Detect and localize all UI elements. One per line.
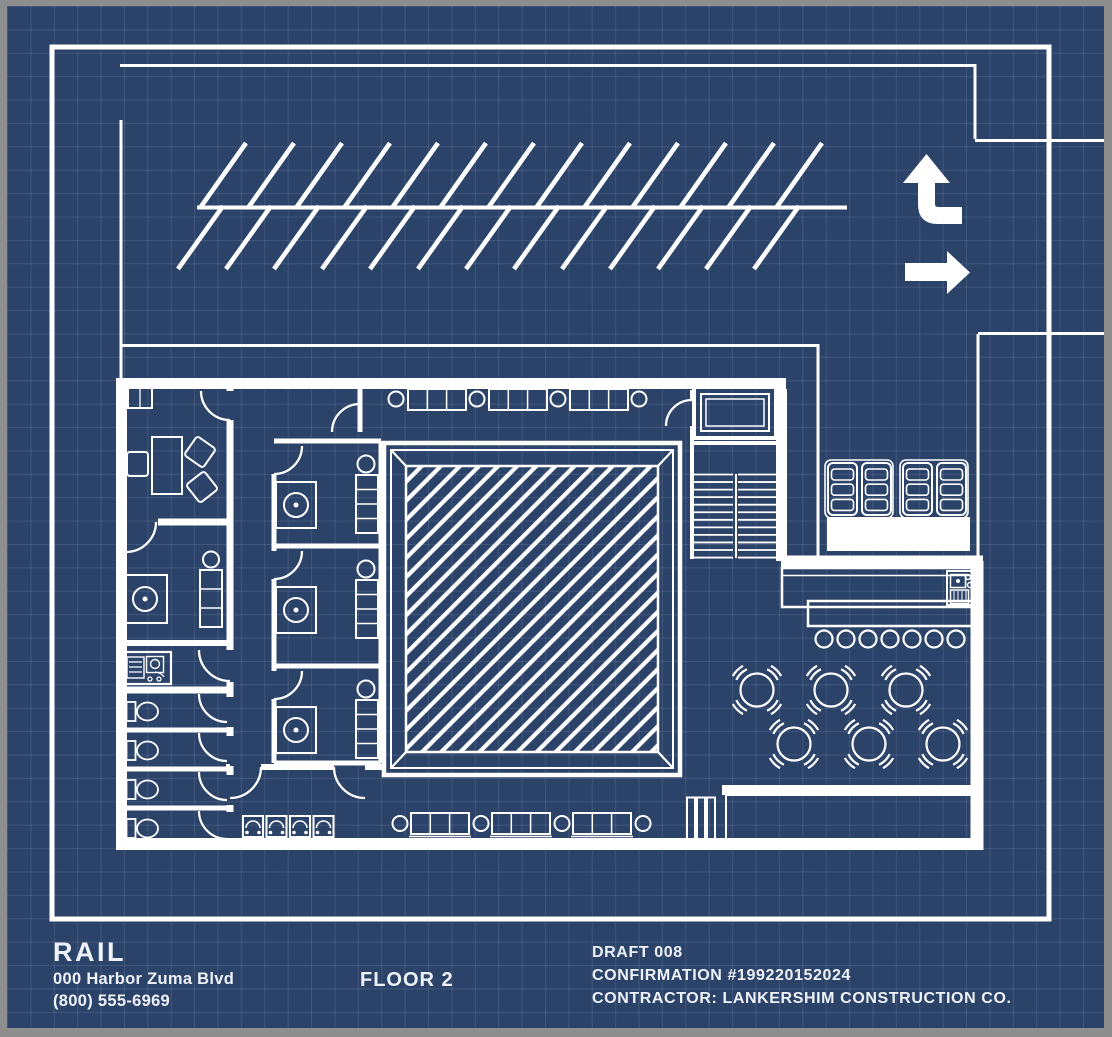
dining-chair: [845, 666, 855, 676]
stall-door-arc: [199, 694, 227, 722]
dining-table: [815, 674, 848, 707]
parking-stall-line: [322, 206, 367, 269]
dining-chair: [845, 720, 855, 730]
bar-stool: [948, 631, 965, 648]
title-block-right: DRAFT 008 CONFIRMATION #199220152024 CON…: [592, 941, 1012, 1011]
toilet: [127, 780, 136, 799]
toilet: [127, 819, 136, 838]
dining-chair: [771, 666, 781, 676]
parking-stall-line: [562, 206, 607, 269]
dining-chair: [770, 720, 780, 730]
booth-sofa: [492, 813, 550, 834]
stall-door-arc: [199, 772, 227, 800]
interior-walls: [116, 389, 383, 844]
toilet: [137, 703, 158, 721]
dining-table: [778, 728, 811, 761]
side-table: [203, 552, 219, 568]
vip-door-arc: [274, 671, 302, 699]
parking-stall-line: [488, 143, 534, 208]
client-name: RAIL: [53, 937, 234, 968]
dining-table: [853, 728, 886, 761]
stair-lobby-door-arc: [666, 400, 692, 426]
dining-chair: [807, 666, 817, 676]
dining-table: [927, 728, 960, 761]
vip-side-table: [358, 681, 375, 698]
parking-stall-line: [440, 143, 486, 208]
address-line: 000 Harbor Zuma Blvd: [53, 968, 234, 990]
booth-table: [555, 816, 570, 831]
floor-plan-drawing: [0, 0, 1112, 1037]
utility-sink-room: [122, 652, 171, 684]
booth-table: [393, 816, 408, 831]
parking-stall-line: [248, 143, 294, 208]
parking-stall-line: [514, 206, 559, 269]
floor-label: FLOOR 2: [360, 969, 454, 992]
bar-area: [782, 568, 975, 626]
booth-sofa: [570, 389, 628, 410]
loading-platform: [827, 517, 970, 551]
bar-stool: [882, 631, 899, 648]
booth-sofa: [411, 813, 469, 834]
booth-sofa: [489, 389, 547, 410]
bar-stool: [860, 631, 877, 648]
parking-stall-line: [680, 143, 726, 208]
vip-rooms: [274, 446, 378, 758]
traffic-arrows: [903, 154, 970, 294]
dining-chair: [845, 704, 855, 714]
booth-table: [470, 392, 485, 407]
lounge-door-arc: [126, 522, 156, 552]
dining-chair: [919, 758, 929, 768]
stairs-and-elevator: [692, 387, 778, 559]
parking-stall-line: [632, 143, 678, 208]
phone-line: (800) 555-6969: [53, 990, 234, 1012]
dumpster-units: [828, 463, 966, 515]
toilet: [127, 741, 136, 760]
office-chair: [127, 452, 148, 476]
turnstile-rail: [707, 798, 715, 840]
parking-stall-line: [706, 206, 751, 269]
booth-table: [474, 816, 489, 831]
parking-stall-line: [728, 143, 774, 208]
parking-stall-line: [658, 206, 703, 269]
vip-side-table: [358, 456, 375, 473]
entry-vestibule: [726, 795, 975, 841]
dining-chair: [883, 758, 893, 768]
stage-hatched-floor: [406, 466, 658, 752]
parking-stall-line: [776, 143, 822, 208]
parking-stall-line: [584, 143, 630, 208]
toilet: [127, 702, 136, 721]
dining-chair: [882, 704, 892, 714]
lounge-sofa: [200, 570, 222, 627]
title-block-left: RAIL 000 Harbor Zuma Blvd (800) 555-6969: [53, 937, 234, 1012]
dining-chair: [808, 758, 818, 768]
stall-door-arc: [199, 811, 227, 839]
confirmation-label: CONFIRMATION #199220152024: [592, 964, 1012, 987]
booth-table: [632, 392, 647, 407]
parking-stall-line: [466, 206, 511, 269]
turnstile-rail: [687, 798, 695, 840]
booth-sofa: [408, 389, 466, 410]
contractor-label: CONTRACTOR: LANKERSHIM CONSTRUCTION CO.: [592, 987, 1012, 1010]
parking-stall-line: [392, 143, 438, 208]
corridor-double-door-arc: [334, 767, 365, 798]
blueprint-sheet: RAIL 000 Harbor Zuma Blvd (800) 555-6969…: [0, 0, 1112, 1037]
booth-table: [551, 392, 566, 407]
turn-up-arrow-icon: [903, 154, 962, 224]
parking-stall-line: [274, 206, 319, 269]
dining-chair: [807, 704, 817, 714]
toilet: [137, 820, 158, 838]
dining-chair: [883, 720, 893, 730]
parking-stall-line: [226, 206, 271, 269]
booth-table: [636, 816, 651, 831]
turnstile-rails: [687, 798, 715, 840]
parking-stall-line: [370, 206, 415, 269]
hall-door-arc: [332, 404, 360, 432]
parking-stall-line: [200, 143, 246, 208]
vip-door-arc: [274, 551, 302, 579]
booth-sofa: [573, 813, 631, 834]
stall-door-arc: [199, 733, 227, 761]
office-door-arc: [201, 391, 230, 420]
toilet: [137, 781, 158, 799]
parking-stall-line: [610, 206, 655, 269]
restroom-sinks: [243, 816, 334, 837]
dining-chair: [919, 720, 929, 730]
dining-table: [741, 674, 774, 707]
dining-chair: [882, 666, 892, 676]
toilet: [137, 742, 158, 760]
parking-stall-line: [536, 143, 582, 208]
dining-chair: [771, 704, 781, 714]
bar-stool: [816, 631, 833, 648]
janitor-door-arc: [199, 650, 230, 681]
dining-chair: [808, 720, 818, 730]
dining-chair: [770, 758, 780, 768]
draft-label: DRAFT 008: [592, 941, 1012, 964]
service-yard: [825, 460, 970, 551]
parking-stall-line: [344, 143, 390, 208]
office-desk: [152, 437, 182, 494]
vip-side-table: [358, 561, 375, 578]
parking-stall-line: [296, 143, 342, 208]
bar-stool: [926, 631, 943, 648]
dining-tables: [733, 666, 967, 768]
stage-platform: [384, 443, 680, 775]
dining-chair: [957, 758, 967, 768]
turnstile-rail: [697, 798, 705, 840]
guest-chair: [186, 471, 218, 503]
dining-chair: [920, 704, 930, 714]
corridor-double-door-arc: [230, 767, 261, 798]
parking-stall-line: [178, 206, 223, 269]
bar-stool: [838, 631, 855, 648]
bar-stool: [904, 631, 921, 648]
guest-chair: [184, 436, 216, 468]
bar-stools: [816, 631, 965, 648]
parking-stall-line: [418, 206, 463, 269]
dining-chair: [845, 758, 855, 768]
parking-lot: [178, 143, 847, 269]
dining-chair: [957, 720, 967, 730]
dining-table: [890, 674, 923, 707]
dining-chair: [733, 704, 743, 714]
vip-door-arc: [274, 446, 302, 474]
lounge-room: [123, 552, 222, 628]
dining-chair: [733, 666, 743, 676]
parking-stall-line: [754, 206, 799, 269]
booth-table: [389, 392, 404, 407]
right-arrow-icon: [905, 251, 970, 294]
dining-chair: [920, 666, 930, 676]
